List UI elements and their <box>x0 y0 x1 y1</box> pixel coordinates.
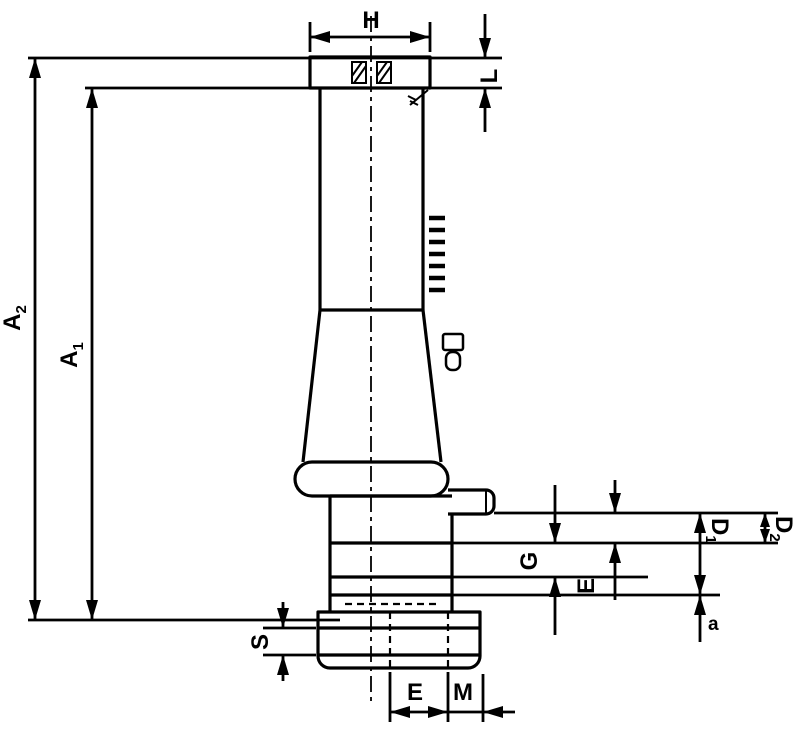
dim-D1: D1 <box>694 513 733 595</box>
dim-E-bottom-label: E <box>407 679 423 706</box>
dim-H-label: H <box>362 7 379 34</box>
side-stub <box>448 490 494 514</box>
dim-S-label: S <box>247 634 274 650</box>
dim-D2: D2 <box>760 513 797 543</box>
taper-right-edge <box>423 310 441 462</box>
dim-H: H <box>310 7 430 43</box>
dim-A2-label: A2 <box>0 305 30 331</box>
extension-lines <box>28 22 778 722</box>
dim-D1-label: D1 <box>702 518 733 544</box>
dim-A2: A2 <box>0 58 41 620</box>
dim-E-side: E <box>573 480 621 600</box>
dim-S: S <box>247 602 289 681</box>
top-bead <box>310 57 430 88</box>
shank-marking <box>429 218 445 290</box>
dim-D2-label: D2 <box>766 516 797 542</box>
dim-a-label: a <box>708 614 719 635</box>
dim-G-label: G <box>516 552 543 571</box>
technical-drawing: H L A2 A1 S E M <box>0 0 800 731</box>
drawing-svg: H L A2 A1 S E M <box>0 0 800 731</box>
dim-A1: A1 <box>56 88 98 620</box>
dim-E-side-label: E <box>573 578 600 594</box>
dim-L: L <box>476 14 503 132</box>
dim-L-label: L <box>476 69 503 84</box>
dim-G: G <box>516 485 561 635</box>
dim-A1-label: A1 <box>56 342 87 368</box>
dim-M-label: M <box>453 679 473 706</box>
bottom-block <box>318 612 480 668</box>
taper-left-edge <box>303 310 320 462</box>
dim-a: a <box>694 595 719 642</box>
chamfer-mark <box>408 90 428 105</box>
clip-icon <box>443 334 463 370</box>
